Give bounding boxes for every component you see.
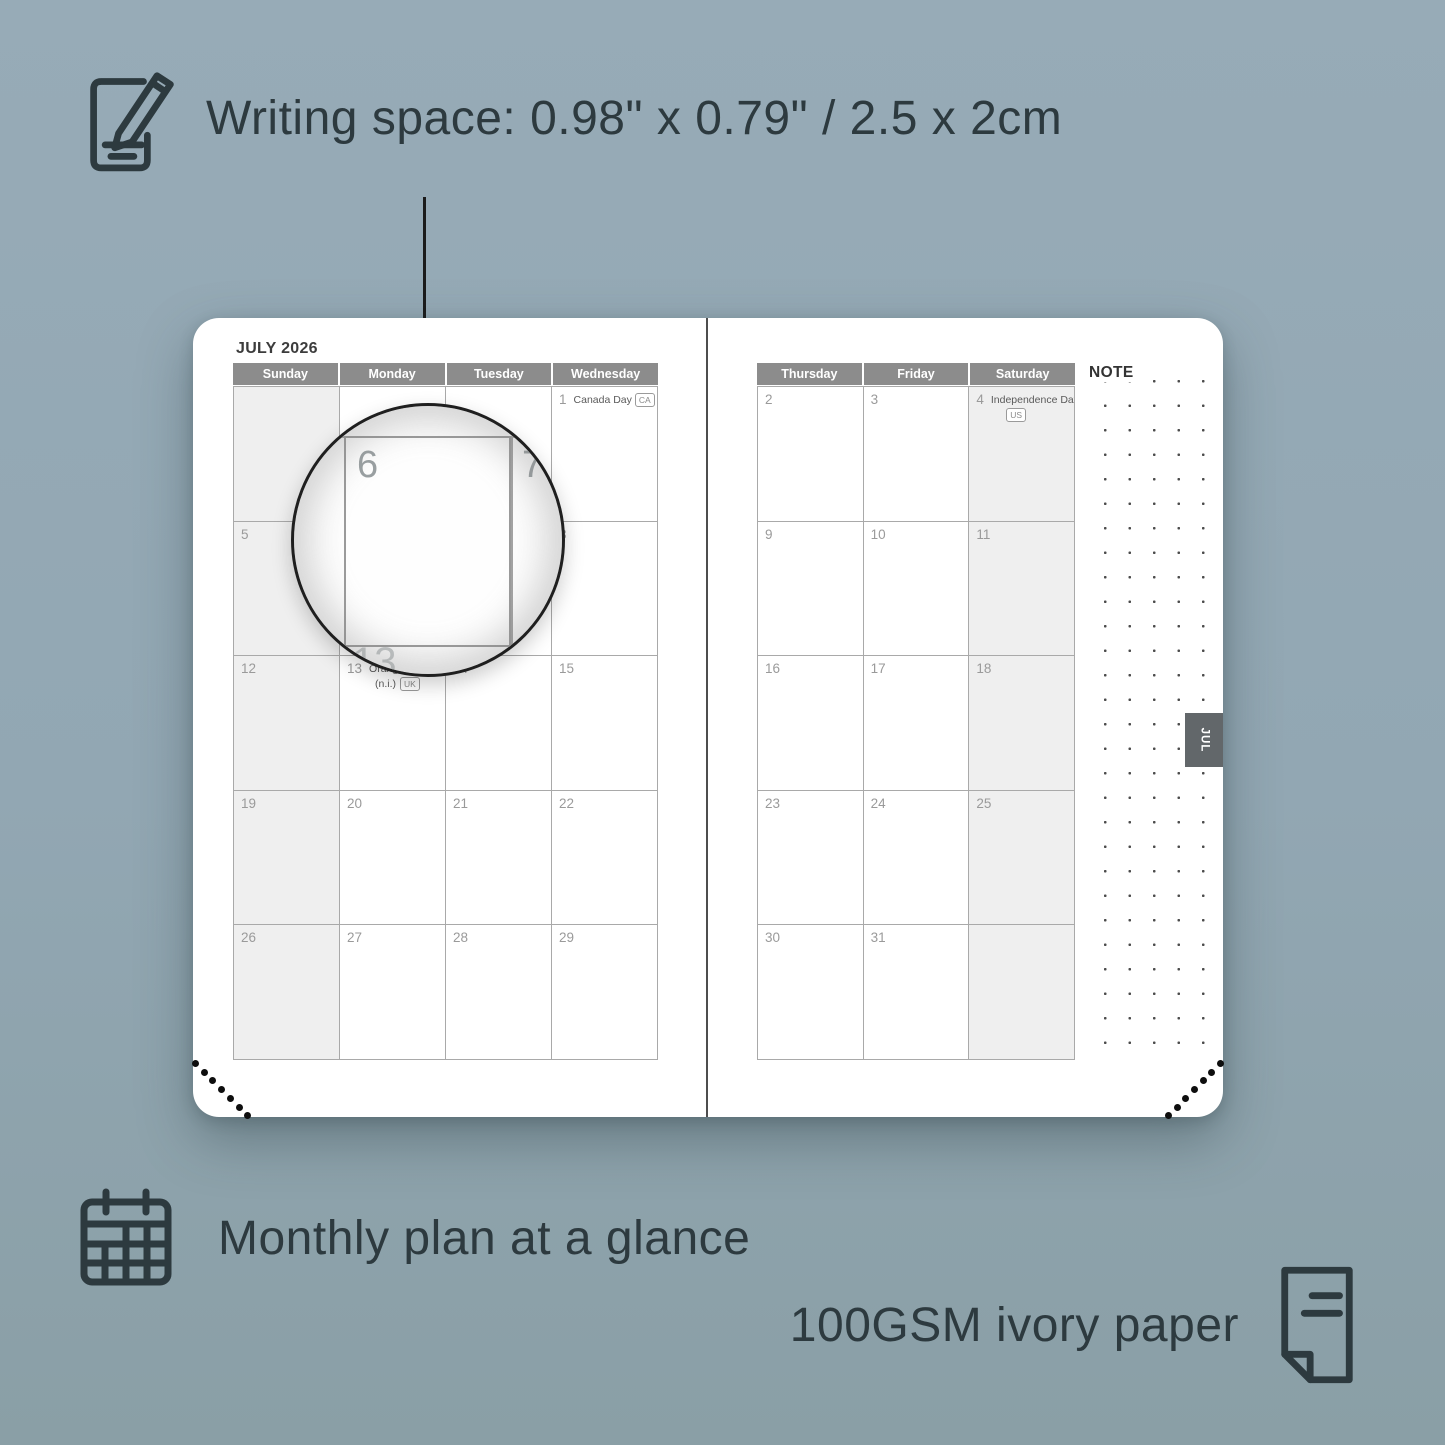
date-number: 3 xyxy=(871,392,879,407)
date-number: 15 xyxy=(559,661,574,676)
date-number: 26 xyxy=(241,930,256,945)
day-cell-20: 20 xyxy=(340,791,446,926)
day-cell-empty xyxy=(969,925,1075,1060)
day-cell-27: 27 xyxy=(340,925,446,1060)
pencil-note-icon xyxy=(84,60,180,176)
magnifier-circle: 6 7 13 xyxy=(291,403,565,677)
date-number: 28 xyxy=(453,930,468,945)
magnified-grid-line xyxy=(511,436,513,674)
day-cell-18: 18 xyxy=(969,656,1075,791)
month-tab-label: JUL xyxy=(1198,728,1210,753)
paper-label: 100GSM ivory paper xyxy=(790,1298,1239,1353)
monthly-plan-feature: Monthly plan at a glance xyxy=(76,1186,750,1290)
day-cell-8: 8 xyxy=(552,522,658,657)
date-number: 11 xyxy=(976,527,990,542)
day-cell-14: 14 xyxy=(446,656,552,791)
country-badge: US xyxy=(1006,408,1026,422)
day-cell-19: 19 xyxy=(234,791,340,926)
date-number: 16 xyxy=(765,661,780,676)
country-badge: CA xyxy=(635,393,655,407)
date-number: 1 xyxy=(559,392,567,407)
day-cell-26: 26 xyxy=(234,925,340,1060)
paper-feature: 100GSM ivory paper xyxy=(790,1262,1361,1388)
holiday-subline: (n.i.)UK xyxy=(347,677,439,691)
date-number: 20 xyxy=(347,796,362,811)
day-cell-17: 17 xyxy=(864,656,970,791)
day-cell-4: 4Independence DayUS xyxy=(969,387,1075,522)
month-title: JULY 2026 xyxy=(236,340,318,358)
day-cell-21: 21 xyxy=(446,791,552,926)
date-number: 31 xyxy=(871,930,886,945)
weekday-header-thursday: Thursday xyxy=(757,363,862,385)
day-cell-3: 3 xyxy=(864,387,970,522)
writing-space-feature: Writing space: 0.98" x 0.79" / 2.5 x 2cm xyxy=(84,60,1062,176)
date-number: 24 xyxy=(871,796,886,811)
magnified-date-7: 7 xyxy=(522,444,543,487)
monthly-plan-label: Monthly plan at a glance xyxy=(218,1211,750,1266)
weekday-header-saturday: Saturday xyxy=(970,363,1075,385)
day-cell-10: 10 xyxy=(864,522,970,657)
holiday-label: Canada Day CA xyxy=(574,392,655,407)
calendar-grid-icon xyxy=(76,1186,176,1290)
page-icon xyxy=(1273,1262,1361,1388)
date-number: 27 xyxy=(347,930,362,945)
day-cell-25: 25 xyxy=(969,791,1075,926)
notebook-spine xyxy=(706,318,708,1117)
date-number: 17 xyxy=(871,661,886,676)
country-badge: UK xyxy=(400,677,420,691)
day-cell-22: 22 xyxy=(552,791,658,926)
date-number: 10 xyxy=(871,527,886,542)
weekday-header-tuesday: Tuesday xyxy=(447,363,552,385)
date-number: 9 xyxy=(765,527,773,542)
day-cell-2: 2 xyxy=(758,387,864,522)
day-cell-24: 24 xyxy=(864,791,970,926)
weekday-header-monday: Monday xyxy=(340,363,445,385)
magnified-date-6: 6 xyxy=(357,444,378,487)
writing-space-label: Writing space: 0.98" x 0.79" / 2.5 x 2cm xyxy=(206,91,1062,146)
date-number: 4 xyxy=(976,392,984,407)
day-cell-1: 1Canada Day CA xyxy=(552,387,658,522)
date-number: 21 xyxy=(453,796,468,811)
date-number: 22 xyxy=(559,796,574,811)
date-number: 25 xyxy=(976,796,991,811)
day-cell-15: 15 xyxy=(552,656,658,791)
date-number: 12 xyxy=(241,661,256,676)
day-cell-9: 9 xyxy=(758,522,864,657)
date-number: 5 xyxy=(241,527,249,542)
note-label: NOTE xyxy=(1089,364,1144,382)
magnified-date-13: 13 xyxy=(352,640,397,677)
date-number: 30 xyxy=(765,930,780,945)
weekday-header-sunday: Sunday xyxy=(233,363,338,385)
day-cell-28: 28 xyxy=(446,925,552,1060)
product-infographic: Writing space: 0.98" x 0.79" / 2.5 x 2cm… xyxy=(0,0,1445,1445)
date-number: 18 xyxy=(976,661,991,676)
weekday-header-friday: Friday xyxy=(864,363,969,385)
day-cell-31: 31 xyxy=(864,925,970,1060)
day-cell-23: 23 xyxy=(758,791,864,926)
calendar-right-page: ThursdayFridaySaturday234Independence Da… xyxy=(757,363,1075,1060)
date-number: 23 xyxy=(765,796,780,811)
date-number: 2 xyxy=(765,392,773,407)
date-number: 29 xyxy=(559,930,574,945)
holiday-subline: US xyxy=(976,408,1068,422)
weekday-header-wednesday: Wednesday xyxy=(553,363,658,385)
day-cell-12: 12 xyxy=(234,656,340,791)
month-tab-jul: JUL xyxy=(1185,713,1223,767)
date-number: 19 xyxy=(241,796,256,811)
day-cell-16: 16 xyxy=(758,656,864,791)
note-dot-grid xyxy=(1083,363,1211,1060)
day-cell-30: 30 xyxy=(758,925,864,1060)
day-cell-11: 11 xyxy=(969,522,1075,657)
holiday-label: Independence Day xyxy=(991,392,1075,407)
day-cell-29: 29 xyxy=(552,925,658,1060)
